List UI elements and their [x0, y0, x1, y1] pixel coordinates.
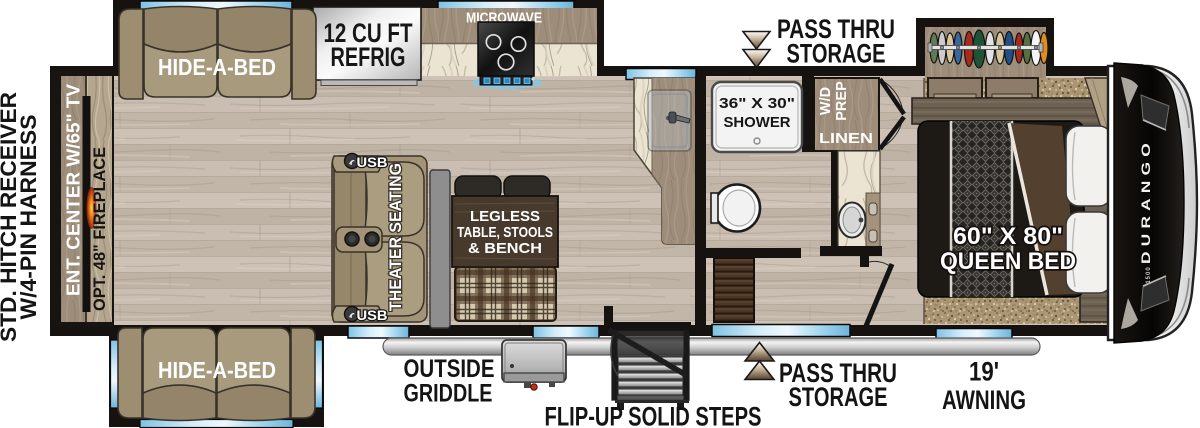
- svg-text:LEGLESS: LEGLESS: [470, 208, 540, 225]
- svg-text:PREP: PREP: [834, 81, 850, 121]
- svg-text:19': 19': [969, 357, 999, 387]
- svg-text:W/4-PIN HARNESS: W/4-PIN HARNESS: [16, 115, 41, 320]
- svg-text:HIDE-A-BED: HIDE-A-BED: [158, 54, 276, 80]
- svg-text:GRIDDLE: GRIDDLE: [404, 380, 493, 408]
- svg-text:LINEN: LINEN: [819, 130, 873, 147]
- svg-text:STORAGE: STORAGE: [789, 382, 888, 412]
- svg-text:OPT. 48" FIREPLACE: OPT. 48" FIREPLACE: [90, 147, 109, 311]
- svg-text:TABLE, STOOLS: TABLE, STOOLS: [457, 224, 553, 241]
- svg-text:AWNING: AWNING: [942, 385, 1026, 415]
- svg-text:THEATER SEATING: THEATER SEATING: [386, 163, 405, 311]
- svg-text:REFRIG: REFRIG: [331, 42, 406, 72]
- svg-text:1500: 1500: [1146, 266, 1152, 283]
- svg-text:ENT. CENTER W/65" TV: ENT. CENTER W/65" TV: [64, 84, 84, 296]
- svg-text:HIDE-A-BED: HIDE-A-BED: [158, 357, 276, 383]
- svg-text:W/D: W/D: [818, 87, 834, 115]
- svg-text:FLIP-UP SOLID STEPS: FLIP-UP SOLID STEPS: [545, 402, 762, 428]
- svg-text:DURANGO: DURANGO: [1141, 138, 1153, 264]
- svg-text:STORAGE: STORAGE: [787, 39, 886, 69]
- svg-text:60" X 80": 60" X 80": [953, 223, 1063, 250]
- svg-text:QUEEN BED: QUEEN BED: [940, 248, 1076, 275]
- svg-text:USB: USB: [357, 307, 388, 323]
- svg-text:& BENCH: & BENCH: [468, 240, 542, 257]
- svg-text:SHOWER: SHOWER: [724, 114, 791, 131]
- svg-text:USB: USB: [357, 154, 388, 170]
- svg-text:36" X 30": 36" X 30": [719, 95, 795, 112]
